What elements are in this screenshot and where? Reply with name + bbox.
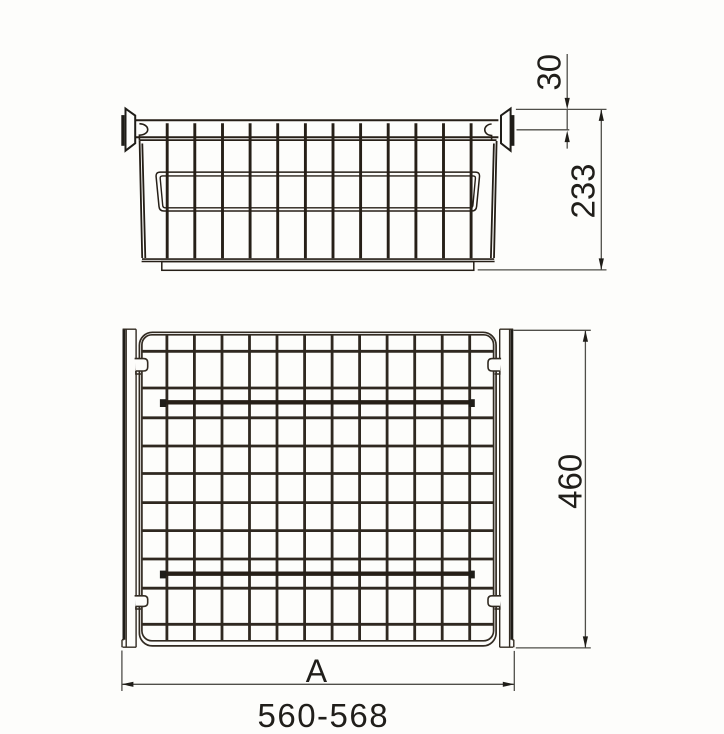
svg-text:560-568: 560-568 (257, 697, 389, 734)
svg-text:A: A (306, 653, 328, 689)
svg-text:233: 233 (565, 163, 602, 218)
svg-text:30: 30 (531, 54, 568, 91)
svg-text:460: 460 (551, 454, 588, 509)
